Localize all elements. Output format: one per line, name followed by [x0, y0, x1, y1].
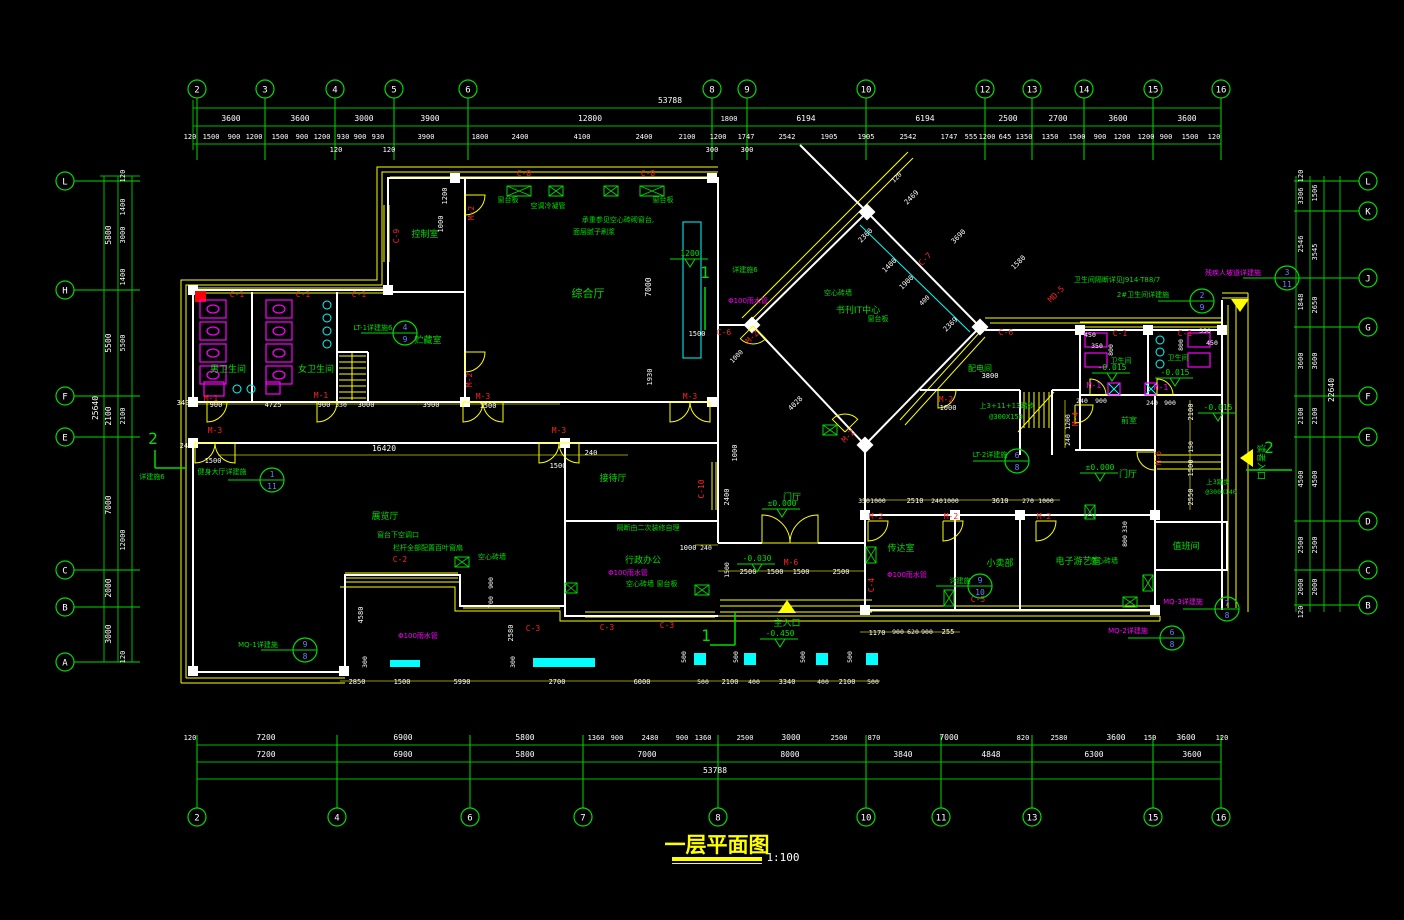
annotation-text: 500 [867, 678, 879, 686]
annotation-text: 900 [487, 577, 495, 589]
callout-top-number: 9 [303, 640, 308, 649]
annotation-text: 120 [119, 651, 127, 664]
annotation-text: 820 [1017, 734, 1030, 742]
annotation-text: 240 [180, 442, 193, 450]
annotation-text: 240 [1064, 434, 1072, 446]
annotation-text: C-3 [526, 624, 541, 633]
axis-bubble-label: 15 [1148, 86, 1159, 96]
annotation-text: 270 [1022, 497, 1034, 505]
level-triangle-icon [1107, 373, 1117, 381]
callout-top-number: 9 [978, 576, 983, 585]
annotation-text: 1500 [550, 462, 567, 470]
annotation-text: 前室 [1121, 415, 1137, 425]
annotation-text: 2 [148, 429, 158, 448]
annotation-text: 2850 [349, 678, 366, 686]
annotation-text: 3690 [950, 228, 968, 246]
annotation-text: 1200 [314, 133, 331, 141]
annotation-text: 1500 [723, 562, 731, 578]
annotation-text: 1500 [272, 133, 289, 141]
annotation-text: 2546 [1297, 236, 1305, 253]
annotation-text: 2100 [1297, 408, 1305, 425]
annotation-text: 900 [210, 401, 223, 409]
annotation-text: 空心砖墙 [824, 288, 852, 297]
annotation-text: 4580 [357, 607, 365, 624]
annotation-text: 男卫生间 [210, 363, 246, 375]
annotation-text: C-1 [1113, 329, 1128, 338]
annotation-text: 3900 [418, 133, 435, 141]
annotation-text: 2650 [1311, 297, 1319, 314]
annotation-text: 2500 [740, 568, 757, 576]
annotation-text: 上3踏步 [1206, 477, 1230, 486]
annotation-text: 1000 [943, 497, 959, 505]
annotation-text: Φ100雨水管 [608, 568, 648, 577]
axis-bubble-label: 4 [334, 814, 339, 824]
annotation-text: 详建施6 [139, 472, 165, 481]
axis-bubble-label: 7 [580, 814, 585, 824]
axis-bubble-label: 9 [744, 86, 749, 96]
annotation-text: 900 [296, 133, 309, 141]
annotation-text: 500 [846, 651, 854, 663]
level-value: ±0.000 [768, 499, 797, 508]
level-triangle-icon [1095, 473, 1105, 481]
annotation-text: 2542 [779, 133, 796, 141]
door-swing-icon [762, 515, 790, 543]
annotation-text: 350 [1091, 342, 1103, 350]
annotation-text: 16420 [372, 444, 396, 453]
annotation-text: 1200 [246, 133, 263, 141]
annotation-text: M-3 [552, 426, 567, 435]
annotation-text: 1200 [979, 133, 996, 141]
annotation-text: 330 [858, 497, 870, 505]
annotation-text: 4725 [265, 401, 282, 409]
annotation-text: 53788 [703, 766, 727, 775]
annotation-text: 1580 [1010, 254, 1028, 272]
annotation-text: C-4 [867, 578, 876, 593]
annotation-text: 2360 [857, 227, 875, 245]
annotation-text: 700 [487, 596, 495, 608]
drawing-title: 一层平面图 1:100 [665, 833, 800, 864]
annotation-text: 1500 [205, 457, 222, 465]
annotation-text: 1905 [821, 133, 838, 141]
annotation-text: 2580 [1051, 734, 1068, 742]
annotation-text: 400 [918, 294, 932, 308]
annotation-text: C-2 [393, 555, 408, 564]
callout-bottom-number: 9 [403, 335, 408, 344]
level-value: -0.015 [1204, 403, 1233, 412]
annotation-text: 900 [1160, 133, 1173, 141]
annotation-text: C-1 [230, 290, 245, 299]
entrance-arrow-icon [1231, 299, 1249, 312]
annotation-text: 2400 [636, 133, 653, 141]
annotation-text: 2500 [1297, 537, 1305, 554]
annotation-text: 5800 [515, 733, 534, 742]
annotation-text: 1800 [721, 115, 738, 123]
annotation-text: 120 [1297, 170, 1305, 183]
annotation-text: 面层腻子刷浆 [573, 227, 615, 236]
annotation-text: 2000 [1311, 579, 1319, 596]
door-swing-icon [943, 521, 963, 541]
annotation-text: 3600 [1176, 733, 1195, 742]
annotation-text: 900 [354, 133, 367, 141]
annotation-text: 255 [942, 628, 955, 636]
annotation-text: 3000 [104, 624, 113, 643]
annotation-text: 120 [383, 146, 396, 154]
floor-plan-drawing: 2345689101213141516246781011131516LHFECB… [0, 0, 1404, 920]
annotation-text: 4028 [787, 395, 805, 413]
axis-bubble-label: 12 [980, 86, 991, 96]
annotation-text: 值班间 [1172, 540, 1199, 552]
callout-bottom-number: 8 [1225, 611, 1230, 620]
annotation-text: 3840 [893, 750, 912, 759]
annotation-text: MQ-2详建施 [1108, 626, 1148, 635]
door-swing-icon [790, 515, 818, 543]
annotation-text: 930 [337, 133, 350, 141]
axis-bubble-label: 6 [467, 814, 472, 824]
annotation-text: 窗台板 [653, 195, 674, 204]
annotation-text: 1350 [1016, 133, 1033, 141]
annotation-text: 2100 [104, 406, 113, 425]
annotation-text: 1747 [738, 133, 755, 141]
annotation-text: C-7 [917, 251, 934, 268]
annotation-text: 1000 [870, 497, 886, 505]
annotation-text: M-1 [314, 391, 329, 400]
annotation-text: 3600 [1108, 114, 1127, 123]
annotation-text: 1930 [646, 369, 654, 386]
callout-bottom-number: 11 [267, 482, 277, 491]
annotation-text: 健身大厅详建施 [198, 467, 247, 476]
annotation-text: M-2 [467, 206, 476, 221]
annotation-text: 1000 [1038, 497, 1054, 505]
annotation-text: 22640 [1327, 378, 1336, 402]
annotation-text: 空心砖墙 [1090, 556, 1118, 565]
annotation-text: 500 [799, 651, 807, 663]
annotation-text: C-8 [641, 169, 656, 178]
annotation-text: 3000 [358, 401, 375, 409]
annotation-text: 870 [868, 734, 881, 742]
annotation-text: 6000 [634, 678, 651, 686]
annotation-text: 行政办公 [625, 554, 661, 566]
annotation-text: 1200 [1064, 414, 1072, 430]
annotation-text: Φ100雨水管 [398, 631, 438, 640]
annotation-text: 800 [1177, 339, 1185, 351]
level-value: -0.015 [1098, 363, 1127, 372]
annotation-text: 接待厅 [599, 472, 626, 484]
annotation-text: 450 [1084, 331, 1096, 339]
callout-top-number: 6 [1015, 451, 1020, 460]
annotation-text: 残疾人坡道详建施 [1205, 268, 1261, 277]
annotation-text: 120 [184, 734, 197, 742]
annotation-text: 450 [1206, 339, 1218, 347]
callout-top-number: 3 [1285, 268, 1290, 277]
level-value: -0.015 [1161, 368, 1190, 377]
annotation-text: LT-2详建施 [973, 450, 1008, 459]
axis-bubble-label: 6 [465, 86, 470, 96]
axis-bubble-label: D [1365, 518, 1370, 528]
title-scale: 1:100 [766, 851, 799, 864]
annotation-text: 900 [228, 133, 241, 141]
level-triangle-icon [777, 509, 787, 517]
callout-top-number: 2 [1200, 291, 1205, 300]
annotation-text: Φ100雨水管 [728, 296, 768, 305]
axis-bubbles: 2345689101213141516246781011131516LHFECB… [56, 80, 1377, 826]
annotation-text: 500 [697, 678, 709, 686]
annotation-text: 2500 [737, 734, 754, 742]
annotation-text: C-1 [296, 290, 311, 299]
axis-bubble-label: 10 [861, 86, 872, 96]
annotation-text: 120 [1216, 734, 1229, 742]
annotation-text: 3600 [221, 114, 240, 123]
annotation-text: 8000 [780, 750, 799, 759]
annotation-text: 800 [1121, 535, 1129, 547]
annotation-text: 2100 [1311, 408, 1319, 425]
annotation-text: 4500 [1311, 471, 1319, 488]
annotation-text: 2500 [1311, 537, 1319, 554]
annotation-text: 空调冷凝管 [531, 201, 566, 210]
axis-bubble-label: K [1365, 208, 1371, 218]
annotation-text: 6194 [796, 114, 815, 123]
annotation-text: 1200 [710, 133, 727, 141]
axis-bubble-label: 5 [391, 86, 396, 96]
annotation-text: 7000 [644, 277, 653, 296]
annotation-text: MD-5 [1046, 284, 1066, 304]
annotation-text: 1000 [680, 544, 697, 552]
annotation-text: 1500 [793, 568, 810, 576]
annotation-text: 窗台板 [657, 579, 678, 588]
annotation-text: MQ-1详建施 [238, 640, 278, 649]
annotation-text: 1500 [203, 133, 220, 141]
annotation-text: 330 [1121, 521, 1129, 533]
annotation-text: M-2 [869, 512, 884, 521]
annotation-text: 女卫生间 [298, 363, 334, 375]
annotation-text: 2700 [1048, 114, 1067, 123]
annotation-text: 5800 [104, 225, 113, 244]
annotation-text: 卫生间隔断详见J914-T88/7 [1074, 275, 1160, 284]
annotation-text: MQ-3详建施 [1163, 597, 1203, 606]
annotation-text: 1360 [588, 734, 605, 742]
annotation-text: 120 [1297, 606, 1305, 619]
annotation-text: 400 [748, 678, 760, 686]
axis-bubble-label: J [1365, 275, 1370, 285]
annotation-text: 900 [1094, 133, 1107, 141]
annotation-text: 3800 [982, 372, 999, 380]
door-swing-icon [465, 352, 485, 372]
axis-bubble-label: F [62, 393, 67, 403]
entrance-arrow-icon [1240, 449, 1253, 467]
axis-bubble-label: E [62, 434, 67, 444]
annotation-text: 4100 [574, 133, 591, 141]
annotation-text: 2469 [903, 189, 921, 207]
axis-bubble-label: B [62, 604, 67, 614]
annotation-text: 3600 [1177, 114, 1196, 123]
stair-lt1-icon [339, 352, 366, 400]
annotation-text: 5500 [119, 335, 127, 352]
annotation-text: 900 [611, 734, 624, 742]
annotation-text: 900 [1095, 397, 1107, 405]
annotation-text: 900 [1164, 399, 1176, 407]
annotation-text: 1848 [1297, 294, 1305, 311]
annotation-text: 1170 [869, 629, 886, 637]
annotation-text: 3600 [1182, 750, 1201, 759]
annotation-text: 120 [184, 133, 197, 141]
annotation-text: 2500 [833, 568, 850, 576]
axis-bubble-label: B [1365, 602, 1370, 612]
axis-bubble-label: F [1365, 393, 1370, 403]
annotation-text: 6300 [1084, 750, 1103, 759]
annotation-text: 1000 [437, 216, 445, 233]
annotation-text: 120 [330, 146, 343, 154]
annotation-text: 3545 [1311, 244, 1319, 261]
axis-bubble-label: A [62, 659, 68, 669]
callout-top-number: 1 [270, 470, 275, 479]
annotation-text: 6900 [393, 733, 412, 742]
callout-bottom-number: 10 [975, 588, 985, 597]
annotation-text: 控制室 [411, 228, 438, 240]
annotation-text: 120 [890, 171, 904, 185]
level-value: -0.450 [766, 629, 795, 638]
annotation-text: 2#卫生间详建施 [1117, 290, 1169, 299]
annotation-text: 240 [585, 449, 598, 457]
annotation-text: 930 [372, 133, 385, 141]
window-symbols [455, 186, 1153, 607]
annotation-text: 120 [119, 170, 127, 183]
annotation-text: 2510 [907, 497, 924, 505]
annotation-text: 贮藏室 [414, 334, 441, 346]
axis-bubble-label: 13 [1027, 814, 1038, 824]
annotation-text: 2542 [900, 133, 917, 141]
callout-bottom-number: 8 [303, 652, 308, 661]
level-value: ±0.000 [1086, 463, 1115, 472]
annotation-text: C-1 [1178, 329, 1193, 338]
callout-bottom-number: 9 [1200, 303, 1205, 312]
annotation-text: M-2 [944, 512, 959, 521]
annotation-text: 小卖部 [986, 557, 1013, 569]
annotation-text: 2580 [507, 625, 515, 642]
annotation-text: 3340 [779, 678, 796, 686]
annotation-text: 240 [931, 497, 943, 505]
annotation-text: 1400 [119, 269, 127, 286]
annotation-text: 3000 [781, 733, 800, 742]
annotation-text: 隔断由二次装修自理 [617, 523, 680, 532]
annotation-text: 300 [509, 656, 517, 668]
annotation-text: 2400 [512, 133, 529, 141]
annotation-text: 1350 [1042, 133, 1059, 141]
annotation-text: 1000 [940, 404, 957, 412]
callout-bottom-number: 8 [1170, 640, 1175, 649]
annotation-text: M-2 [840, 428, 857, 445]
annotation-text: 门厅 [1119, 468, 1137, 480]
annotation-text: 1400 [119, 199, 127, 216]
annotation-text: 3600 [1106, 733, 1125, 742]
annotation-text: 6900 [393, 750, 412, 759]
callout-bottom-number: 8 [1015, 463, 1020, 472]
annotation-text: 3000 [119, 227, 127, 244]
annotation-text: 5800 [515, 750, 534, 759]
annotation-layer: 3600360030003900128001800619461942500270… [91, 96, 1336, 775]
annotation-text: 2 [1264, 438, 1274, 457]
annotation-text: 7000 [637, 750, 656, 759]
annotation-text: 3610 [992, 497, 1009, 505]
axis-bubble-label: 4 [332, 86, 337, 96]
annotation-text: LT-1详建施6 [353, 323, 393, 332]
level-value: 1200 [680, 249, 699, 258]
annotation-text: 详建施 [950, 576, 971, 585]
annotation-text: 展览厅 [371, 510, 398, 522]
annotation-text: 空心砖墙 [478, 552, 506, 561]
annotation-text: 300 [741, 146, 754, 154]
annotation-text: 240 [700, 544, 712, 552]
annotation-text: 2700 [549, 678, 566, 686]
annotation-text: 2550 [1187, 489, 1195, 506]
annotation-text: 3306 [1297, 188, 1305, 205]
annotation-text: 7000 [104, 495, 113, 514]
annotation-text: M-3 [208, 426, 223, 435]
annotation-text: 综合厅 [572, 286, 605, 300]
annotation-text: 4848 [981, 750, 1000, 759]
axis-bubble-label: 16 [1216, 86, 1227, 96]
axis-bubble-label: L [62, 178, 67, 188]
annotation-text: 2100 [722, 678, 739, 686]
axis-bubble-label: 16 [1216, 814, 1227, 824]
door-swing-icon [1137, 452, 1155, 470]
annotation-text: 1506 [1311, 185, 1319, 202]
annotation-text: 2100 [1187, 404, 1195, 421]
annotation-text: M-2 [465, 373, 474, 388]
annotation-text: @300X150 [989, 413, 1023, 421]
axis-bubble-label: G [1365, 324, 1370, 334]
annotation-text: C-10 [697, 479, 706, 498]
annotation-text: 7000 [939, 733, 958, 742]
annotation-text: 窗台板 [868, 314, 889, 323]
annotation-text: 1500 [1187, 460, 1195, 477]
level-triangle-icon [685, 259, 695, 267]
annotation-text: 25640 [91, 396, 100, 420]
axis-bubble-label: 2 [194, 86, 199, 96]
annotation-text: 12000 [119, 529, 127, 550]
axis-bubble-label: C [1365, 567, 1370, 577]
annotation-text: 330 [335, 401, 347, 409]
annotation-text: C-3 [600, 623, 615, 632]
annotation-text: C-3 [660, 621, 675, 630]
annotation-text: 3900 [423, 401, 440, 409]
door-arcs [195, 195, 1173, 543]
annotation-text: 240 [1146, 399, 1158, 407]
annotation-text: 3600 [1297, 353, 1305, 370]
axis-bubble-label: 15 [1148, 814, 1159, 824]
axis-bubble-label: E [1365, 434, 1370, 444]
annotation-text: 240 [1076, 397, 1088, 405]
annotation-text: @300X140 [1205, 488, 1236, 496]
annotation-text: 150 [1144, 734, 1157, 742]
annotation-text: 300 [361, 656, 369, 668]
axis-bubble-label: L [1365, 178, 1370, 188]
callout-top-number: 6 [1170, 628, 1175, 637]
annotation-text: 2400 [723, 489, 731, 506]
annotation-text: 1800 [472, 133, 489, 141]
annotation-text: 详建施6 [732, 265, 758, 274]
callout-bottom-number: 11 [1282, 280, 1292, 289]
annotation-text: 1500 [767, 568, 784, 576]
annotation-text: M-5 [1154, 451, 1163, 466]
annotation-text: 上3+11+13踏步 [980, 401, 1035, 410]
axis-bubble-label: 11 [936, 814, 947, 824]
annotation-text: 2100 [839, 678, 856, 686]
annotation-text: 400 [817, 678, 829, 686]
annotation-text: 1200 [1138, 133, 1155, 141]
annotation-text: 5990 [454, 678, 471, 686]
annotation-text: 3600 [290, 114, 309, 123]
callout-top-number: 7 [1225, 599, 1230, 608]
annotation-text: 1 [700, 263, 710, 282]
